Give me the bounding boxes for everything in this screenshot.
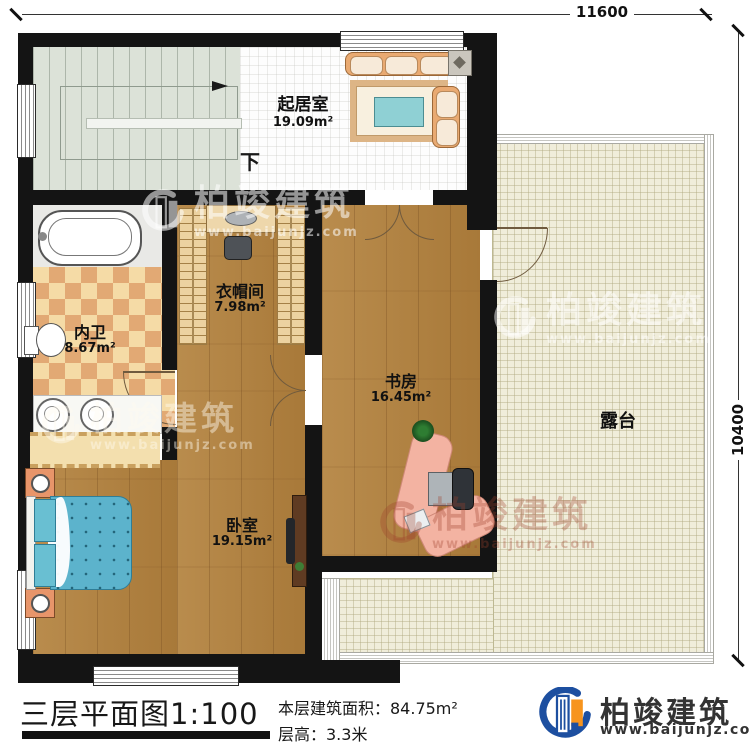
wardrobe	[277, 208, 305, 345]
stair-down-label: 下	[240, 146, 260, 175]
wall-bathroom	[162, 427, 177, 460]
terrace-floor	[492, 142, 706, 657]
dimension-right-label: 10400	[729, 400, 747, 460]
desk-plant	[412, 420, 434, 442]
window-bottom	[93, 666, 239, 686]
bathtub	[38, 210, 142, 266]
wall-bottom-corner	[300, 660, 400, 683]
terrace-door-leaf	[497, 227, 547, 229]
plant	[295, 562, 304, 571]
wall-bedroom-study	[305, 425, 322, 683]
dimension-top-label: 11600	[570, 3, 634, 21]
title-underline	[22, 731, 270, 739]
room-label-terrace: 露台	[570, 412, 666, 433]
wall-bathroom	[162, 205, 177, 370]
nightstand	[25, 468, 55, 498]
bedroom-floor	[177, 345, 305, 656]
side-table	[448, 50, 472, 76]
sofa-corner	[432, 86, 460, 148]
stair-rail	[86, 118, 242, 129]
bed	[26, 496, 130, 588]
sink	[80, 398, 114, 432]
stair-direction-arrow	[212, 81, 228, 91]
office-chair	[452, 468, 474, 510]
terrace-railing	[492, 134, 714, 144]
sink	[36, 398, 70, 432]
room-label-cloakroom: 衣帽间 7.98m²	[192, 283, 288, 316]
floor-plan: 下	[0, 0, 750, 747]
bath-mat	[30, 432, 160, 468]
window-top	[340, 31, 464, 51]
floor-area-text: 本层建筑面积：84.75m²	[278, 695, 458, 719]
wall-study-bottom	[305, 556, 497, 572]
plan-title: 三层平面图1:100	[20, 691, 259, 733]
floor-height-text: 层高：3.3米	[278, 721, 367, 745]
coffee-table	[374, 97, 424, 127]
stool	[224, 236, 252, 260]
dimension-line-right	[738, 30, 739, 662]
terrace-railing	[704, 134, 714, 664]
brand-url: www.baijunjz.com	[600, 722, 750, 738]
room-label-bathroom: 内卫 8.67m²	[42, 324, 138, 357]
room-label-study: 书房 16.45m²	[353, 373, 449, 406]
brand-logo-icon	[536, 687, 594, 744]
dresser	[206, 205, 276, 233]
dimension-tick	[9, 8, 22, 21]
sofa	[345, 52, 457, 76]
nightstand	[25, 588, 55, 618]
terrace-floor	[338, 578, 494, 657]
window-left-1	[17, 84, 36, 158]
room-label-bedroom: 卧室 19.15m²	[194, 517, 290, 550]
bathroom-door-leaf	[123, 371, 175, 373]
wall-bedroom-study	[305, 190, 322, 355]
room-label-living: 起居室 19.09m²	[253, 96, 353, 130]
wardrobe	[179, 208, 207, 345]
